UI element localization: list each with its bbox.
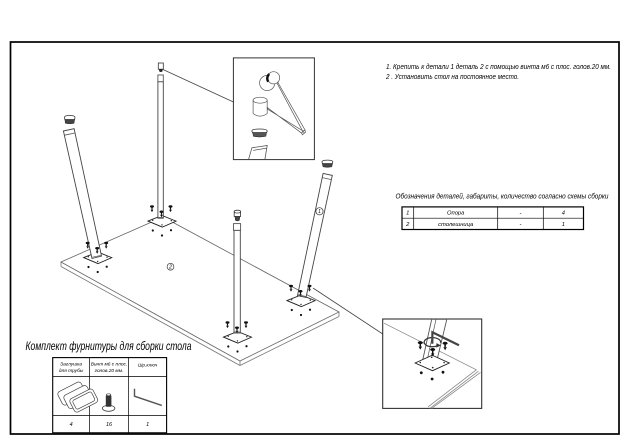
- svg-text:Заглушка: Заглушка: [60, 362, 82, 368]
- svg-text:4: 4: [562, 211, 565, 217]
- svg-text:Опора: Опора: [447, 211, 465, 217]
- svg-text:2: 2: [405, 222, 410, 228]
- svg-text:1: 1: [406, 211, 409, 217]
- svg-text:1: 1: [318, 209, 321, 215]
- svg-text:-: -: [520, 222, 522, 228]
- svg-text:4: 4: [70, 422, 73, 428]
- svg-text:1. Крепить к детали 1 деталь 2: 1. Крепить к детали 1 деталь 2 с помощью…: [386, 63, 611, 71]
- svg-text:2 . Установить стол на постоян: 2 . Установить стол на постоянное место.: [385, 74, 519, 81]
- svg-text:1: 1: [146, 422, 149, 428]
- svg-text:для трубы: для трубы: [59, 368, 84, 374]
- svg-text:голов.20 мм.: голов.20 мм.: [95, 368, 124, 374]
- svg-text:-: -: [520, 211, 522, 217]
- svg-text:1: 1: [562, 222, 565, 228]
- svg-text:Шр.ключ: Шр.ключ: [138, 363, 158, 369]
- svg-text:столешница: столешница: [438, 222, 474, 228]
- svg-text:Обозначения деталей, габариты,: Обозначения деталей, габариты, количеств…: [396, 192, 609, 201]
- svg-text:2: 2: [168, 265, 172, 271]
- svg-text:16: 16: [106, 422, 113, 428]
- svg-text:Винт м6 с плос.: Винт м6 с плос.: [91, 362, 128, 368]
- svg-text:Комплект фурнитуры для сборки: Комплект фурнитуры для сборки стола: [26, 341, 192, 353]
